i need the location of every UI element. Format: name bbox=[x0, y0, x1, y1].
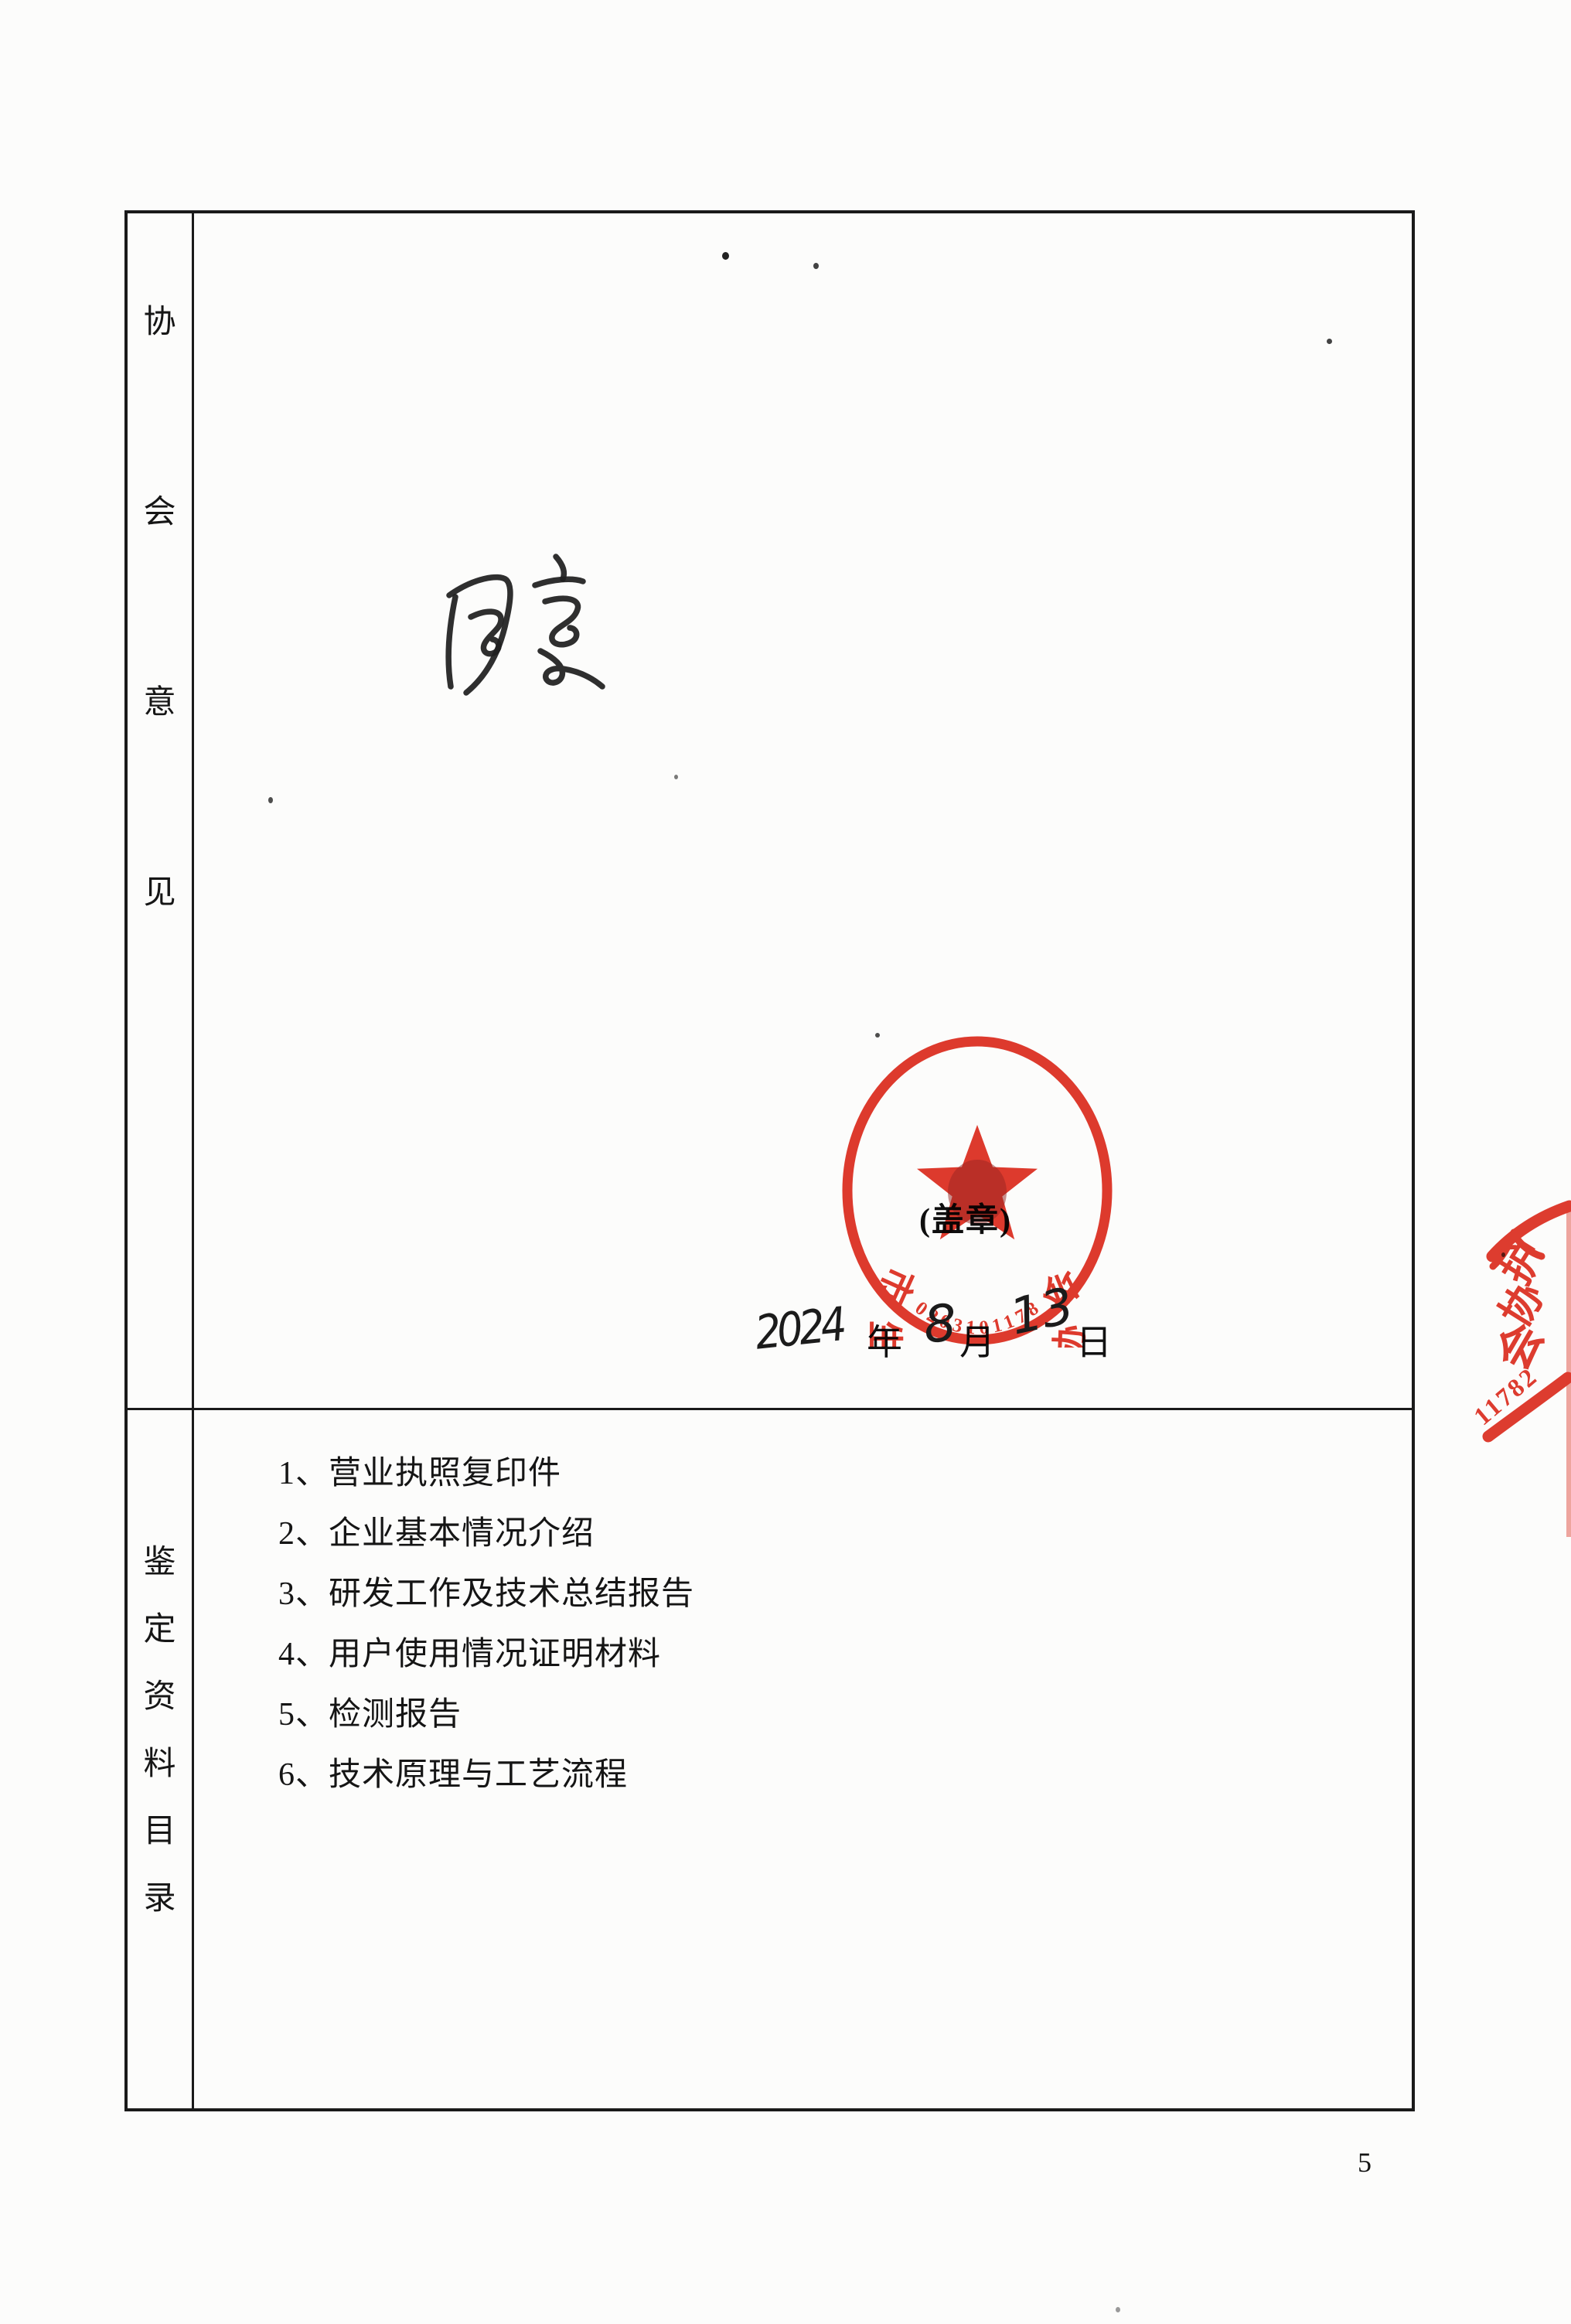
date-year-handwritten: 2024 bbox=[752, 1297, 845, 1360]
label-char: 录 bbox=[143, 1883, 176, 1915]
seal-star-ink-blot bbox=[948, 1160, 1007, 1225]
label-char: 目 bbox=[143, 1815, 176, 1848]
opinion-cell: (盖章) 市生态环境保护协会 02031011782 bbox=[194, 213, 1412, 1408]
materials-cell: 1、营业执照复印件 2、企业基本情况介绍 3、研发工作及技术总结报告 4、用户使… bbox=[194, 1410, 1412, 2108]
label-char: 定 bbox=[143, 1614, 176, 1646]
edge-ink-smear bbox=[1566, 1205, 1571, 1537]
appraisal-form-table: 协 会 意 见 (盖章) bbox=[124, 210, 1415, 2111]
official-seal: 市生态环境保护协会 02031011782 bbox=[840, 1034, 1116, 1348]
list-item: 2、企业基本情况介绍 bbox=[278, 1509, 694, 1569]
scan-speck bbox=[268, 797, 273, 803]
label-char: 见 bbox=[143, 877, 176, 909]
scan-speck bbox=[1116, 2307, 1120, 2312]
scanned-document-page: 协 会 意 见 (盖章) bbox=[0, 0, 1571, 2324]
date-month-handwritten: 8 bbox=[922, 1293, 958, 1355]
scan-speck bbox=[722, 252, 729, 260]
handwritten-approval-tongyi bbox=[431, 549, 624, 704]
label-char: 意 bbox=[143, 687, 176, 719]
label-char: 资 bbox=[143, 1681, 176, 1713]
label-char: 鉴 bbox=[143, 1546, 176, 1579]
scan-speck bbox=[813, 263, 819, 269]
label-char: 协 bbox=[143, 306, 176, 339]
list-item: 6、技术原理与工艺流程 bbox=[278, 1750, 694, 1811]
edge-paging-seal: 护 协 会 11782 bbox=[1469, 1183, 1571, 1678]
label-materials-catalog: 鉴 定 资 料 目 录 bbox=[128, 1410, 194, 2108]
list-item: 1、营业执照复印件 bbox=[278, 1449, 694, 1509]
label-char: 会 bbox=[143, 496, 176, 529]
table-row: 协 会 意 见 (盖章) bbox=[128, 213, 1412, 1410]
list-item: 4、用户使用情况证明材料 bbox=[278, 1630, 694, 1690]
scan-speck bbox=[1327, 339, 1332, 344]
label-char: 料 bbox=[143, 1748, 176, 1780]
list-item: 3、研发工作及技术总结报告 bbox=[278, 1569, 694, 1630]
list-item: 5、检测报告 bbox=[278, 1690, 694, 1750]
page-number: 5 bbox=[1358, 2146, 1372, 2179]
label-association-opinion: 协 会 意 见 bbox=[128, 213, 194, 1408]
table-row: 鉴 定 资 料 目 录 1、营业执照复印件 2、企业基本情况介绍 3、研发工作及… bbox=[128, 1410, 1412, 2108]
materials-list: 1、营业执照复印件 2、企业基本情况介绍 3、研发工作及技术总结报告 4、用户使… bbox=[278, 1449, 694, 1811]
scan-speck bbox=[674, 775, 678, 779]
